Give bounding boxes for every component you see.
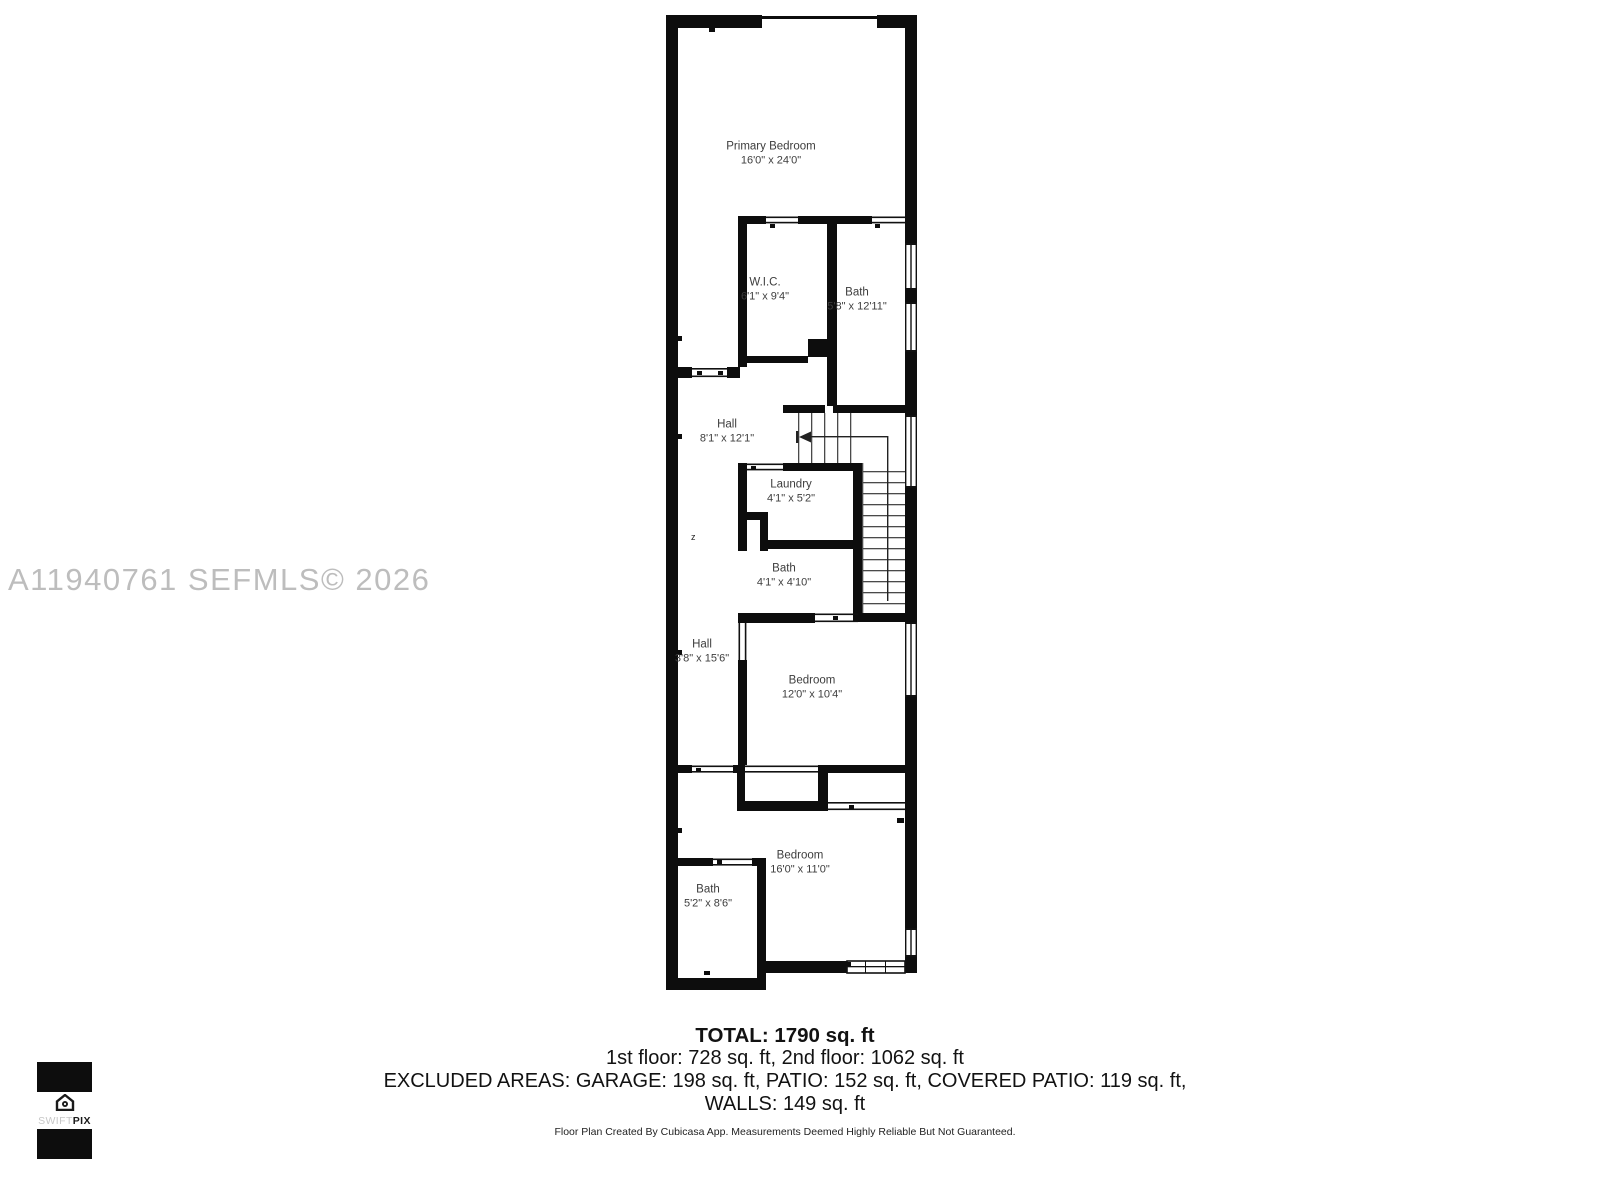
room-name: Bath — [827, 287, 887, 301]
room-name: Bath — [684, 884, 732, 898]
swiftpix-logo-mid: SWIFTPIX — [37, 1092, 92, 1129]
room-dims: 8'1" x 12'1" — [700, 432, 754, 446]
room-label-bedroom-lower: Bedroom 16'0" x 11'0" — [770, 850, 830, 877]
floor-areas-line: 1st floor: 728 sq. ft, 2nd floor: 1062 s… — [0, 1047, 1585, 1070]
room-dims: 5'8" x 12'11" — [827, 300, 887, 314]
room-dims: 5'2" x 8'6" — [684, 897, 732, 911]
room-name: Bedroom — [782, 675, 842, 689]
room-name: W.I.C. — [741, 277, 789, 291]
room-dims: 4'1" x 5'2" — [767, 492, 815, 506]
total-area-line: TOTAL: 1790 sq. ft — [0, 1024, 1585, 1047]
room-dims: 4'1" x 4'10" — [757, 576, 811, 590]
mls-watermark: A11940761 SEFMLS© 2026 — [8, 562, 430, 598]
plan-z-symbol: z — [691, 532, 696, 542]
disclaimer-text: Floor Plan Created By Cubicasa App. Meas… — [0, 1126, 1585, 1138]
room-dims: 16'0" x 11'0" — [770, 863, 830, 877]
room-name: Primary Bedroom — [726, 141, 815, 155]
excluded-areas-line: EXCLUDED AREAS: GARAGE: 198 sq. ft, PATI… — [0, 1070, 1585, 1093]
room-label-bedroom-middle: Bedroom 12'0" x 10'4" — [782, 675, 842, 702]
room-label-wic: W.I.C. 6'1" x 9'4" — [741, 277, 789, 304]
room-label-primary-bedroom: Primary Bedroom 16'0" x 24'0" — [726, 141, 815, 168]
room-name: Bedroom — [770, 850, 830, 864]
room-name: Hall — [675, 639, 729, 653]
swiftpix-logo: SWIFTPIX — [37, 1062, 92, 1159]
room-dims: 12'0" x 10'4" — [782, 688, 842, 702]
room-name: Laundry — [767, 479, 815, 493]
room-name: Hall — [700, 419, 754, 433]
room-label-hall-upper: Hall 8'1" x 12'1" — [700, 419, 754, 446]
stairs — [796, 413, 905, 613]
room-label-primary-bath: Bath 5'8" x 12'11" — [827, 287, 887, 314]
swiftpix-logo-block-bottom — [37, 1129, 92, 1159]
area-summary: TOTAL: 1790 sq. ft 1st floor: 728 sq. ft… — [0, 1024, 1585, 1138]
room-dims: 16'0" x 24'0" — [726, 154, 815, 168]
sliding-door — [847, 961, 905, 973]
room-name: Bath — [757, 563, 811, 577]
room-dims: 3'8" x 15'6" — [675, 652, 729, 666]
room-label-laundry: Laundry 4'1" x 5'2" — [767, 479, 815, 506]
walls-area-line: WALLS: 149 sq. ft — [0, 1093, 1585, 1116]
room-label-hall-bath: Bath 4'1" x 4'10" — [757, 563, 811, 590]
room-label-bath-lower: Bath 5'2" x 8'6" — [684, 884, 732, 911]
room-dims: 6'1" x 9'4" — [741, 290, 789, 304]
swiftpix-wordmark: SWIFTPIX — [37, 1116, 92, 1127]
room-label-hall-lower: Hall 3'8" x 15'6" — [675, 639, 729, 666]
swiftpix-logo-block-top — [37, 1062, 92, 1092]
swiftpix-wordmark-pix: PIX — [73, 1115, 91, 1127]
house-icon — [55, 1094, 75, 1111]
floor-plan-page: Primary Bedroom 16'0" x 24'0" W.I.C. 6'1… — [0, 0, 1600, 1185]
swiftpix-wordmark-swift: SWIFT — [38, 1115, 73, 1127]
